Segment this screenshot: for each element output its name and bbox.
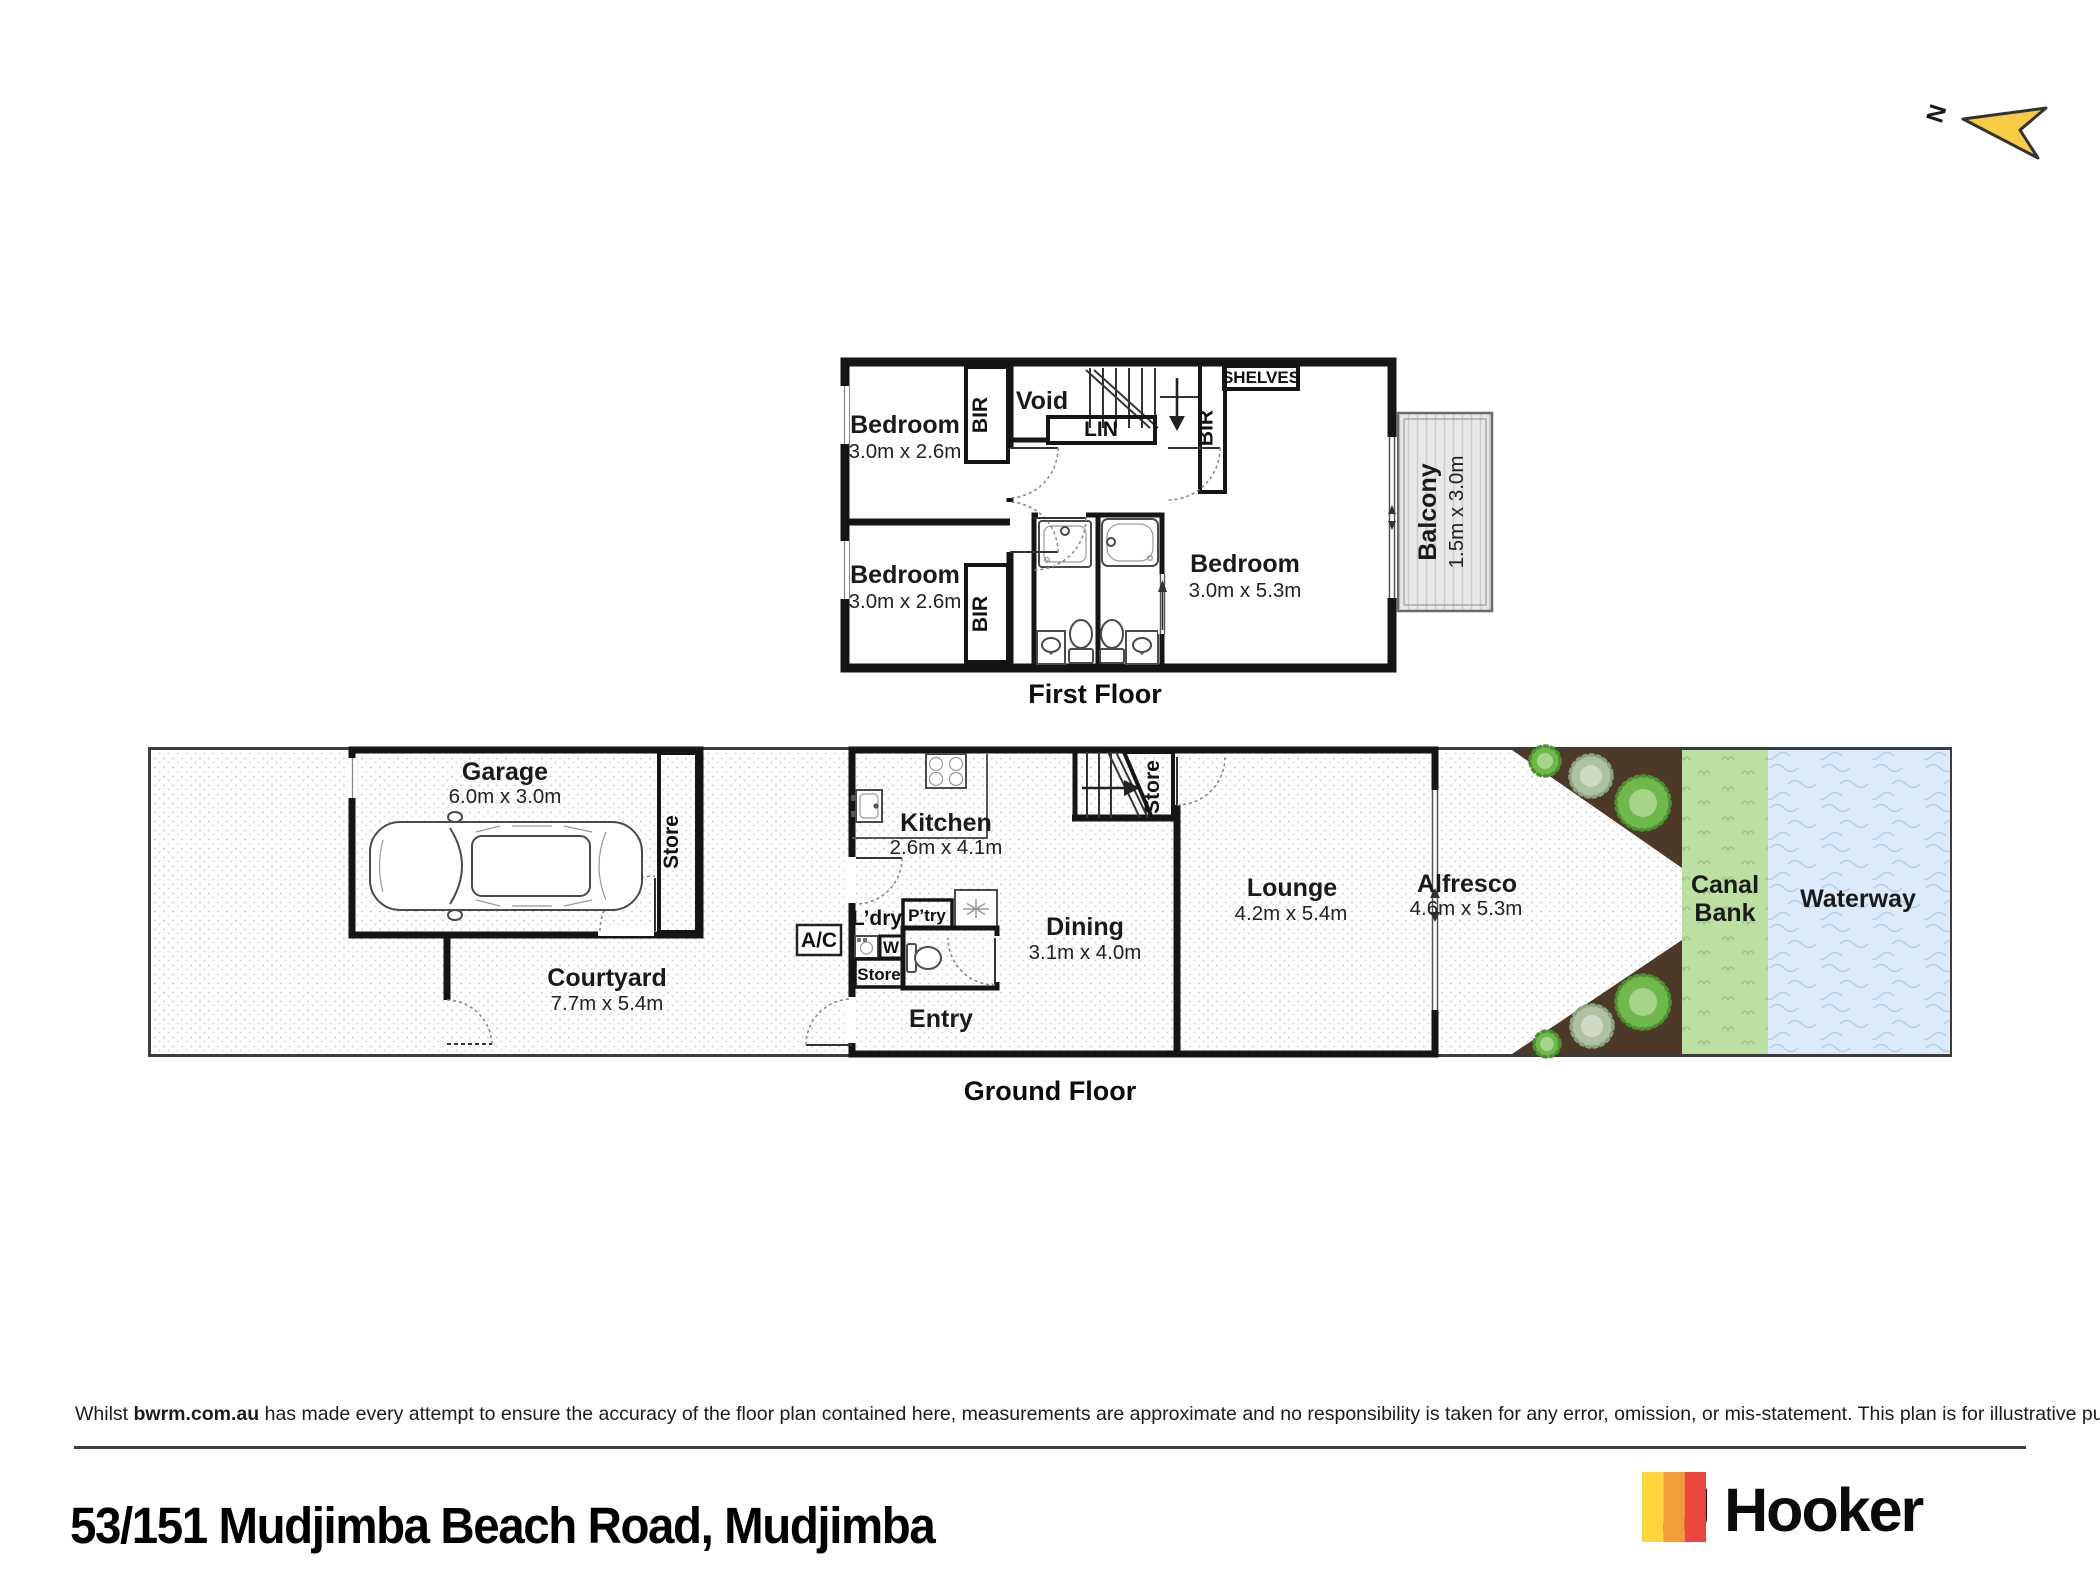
room-label: Kitchen: [900, 809, 992, 837]
room-label: Bedroom: [1190, 550, 1300, 578]
room-dims: 6.0m x 3.0m: [449, 785, 562, 808]
sliding-door: [1158, 574, 1167, 634]
pantry-label: P’try: [908, 906, 946, 925]
balcony-label: Balcony: [1414, 463, 1442, 560]
linen-cupboard: LIN: [1048, 417, 1155, 443]
room-label: Void: [1016, 387, 1068, 415]
divider-line: [74, 1446, 2026, 1449]
ac-unit: A/C: [797, 925, 841, 955]
understair-store-label: Store: [1141, 760, 1164, 814]
toilet-icon: [1100, 620, 1124, 663]
shelves-label: SHELVES: [1222, 368, 1300, 387]
first-floor-plan: Balcony 1.5m x 3.0m: [840, 362, 1492, 709]
toilet-icon: [907, 944, 941, 972]
room-dims: 7.7m x 5.4m: [551, 992, 664, 1015]
waterway-label: Waterway: [1800, 885, 1916, 913]
laundry-label: L’dry: [852, 907, 903, 930]
bir-robe: BIR: [966, 565, 1008, 662]
canal-bank: Canal Bank: [1682, 750, 1768, 1054]
room-label: Garage: [462, 758, 548, 786]
room-dims: 3.1m x 4.0m: [1029, 941, 1142, 964]
bir-robe: BIR: [1195, 364, 1226, 492]
room-label: Bedroom: [850, 411, 960, 439]
tree-icon: [1616, 776, 1670, 830]
bir-label: BIR: [1195, 410, 1218, 446]
ljhooker-logo: LJ Hooker: [1642, 1472, 1922, 1548]
room-label: Lounge: [1247, 874, 1337, 902]
room-dims: 3.0m x 2.6m: [849, 440, 962, 463]
floorplan-page: N Balcony 1.5m x 3.0m: [0, 0, 2100, 1575]
floorplan-canvas: N Balcony 1.5m x 3.0m: [0, 0, 2100, 1395]
shelves: SHELVES: [1222, 366, 1300, 389]
tree-icon: [1534, 1031, 1560, 1057]
cooktop-icon: [926, 754, 966, 788]
washing-machine-icon: [855, 936, 878, 958]
store-label: Store: [857, 965, 900, 984]
tree-icon: [1616, 975, 1670, 1029]
car-icon: [370, 812, 642, 920]
bir-label: BIR: [969, 596, 992, 632]
bir-label: BIR: [969, 397, 992, 433]
bir-robe: BIR: [966, 367, 1008, 462]
room-dims: 3.0m x 2.6m: [849, 590, 962, 613]
room-dims: 2.6m x 4.1m: [890, 836, 1003, 859]
vanity-sink-icon: [1126, 631, 1158, 664]
property-address: 53/151 Mudjimba Beach Road, Mudjimba: [70, 1496, 934, 1555]
fridge-icon: [955, 890, 997, 927]
ground-floor-title: Ground Floor: [964, 1076, 1137, 1106]
tree-icon: [1530, 746, 1560, 776]
room-label: Dining: [1046, 913, 1124, 941]
room-label: Bedroom: [850, 561, 960, 589]
disclaimer-text: Whilst bwrm.com.au has made every attemp…: [75, 1403, 2055, 1426]
ac-label: A/C: [801, 929, 837, 952]
washer-box: W: [880, 936, 902, 958]
north-label: N: [1921, 101, 1952, 126]
balcony: Balcony 1.5m x 3.0m: [1398, 413, 1492, 611]
disclaimer-source: bwrm.com.au: [134, 1403, 260, 1425]
balcony-dims: 1.5m x 3.0m: [1445, 456, 1468, 569]
room-dims: 4.6m x 5.3m: [1410, 897, 1523, 920]
stair-arrow-down-icon: [1169, 416, 1185, 431]
logo-stripes-icon: [1642, 1472, 1706, 1542]
room-dims: 4.2m x 5.4m: [1235, 902, 1348, 925]
first-floor-title: First Floor: [1028, 679, 1162, 709]
tree-icon: [1570, 755, 1612, 797]
waterway: Waterway: [1768, 750, 1950, 1054]
garage-store-label: Store: [660, 815, 683, 869]
tree-icon: [1571, 1005, 1613, 1047]
vanity-sink-icon: [1037, 631, 1065, 664]
linen-label: LIN: [1084, 418, 1118, 441]
canal-bank-label: Canal: [1691, 871, 1759, 899]
room-label: Entry: [909, 1005, 973, 1033]
canal-bank-label: Bank: [1694, 899, 1755, 927]
washer-label: W: [883, 938, 900, 957]
sink-icon: [851, 790, 882, 822]
toilet-icon: [1069, 620, 1093, 663]
north-arrow-icon: N: [1921, 101, 2046, 158]
sliding-door-balcony: [1386, 437, 1397, 598]
room-label: Courtyard: [547, 964, 666, 992]
bathtub-icon: [1102, 519, 1158, 566]
room-label: Alfresco: [1417, 870, 1517, 898]
ground-floor-plan: Canal Bank Waterway Store Garage 6.0m x …: [150, 746, 1951, 1106]
room-dims: 3.0m x 5.3m: [1189, 579, 1302, 602]
